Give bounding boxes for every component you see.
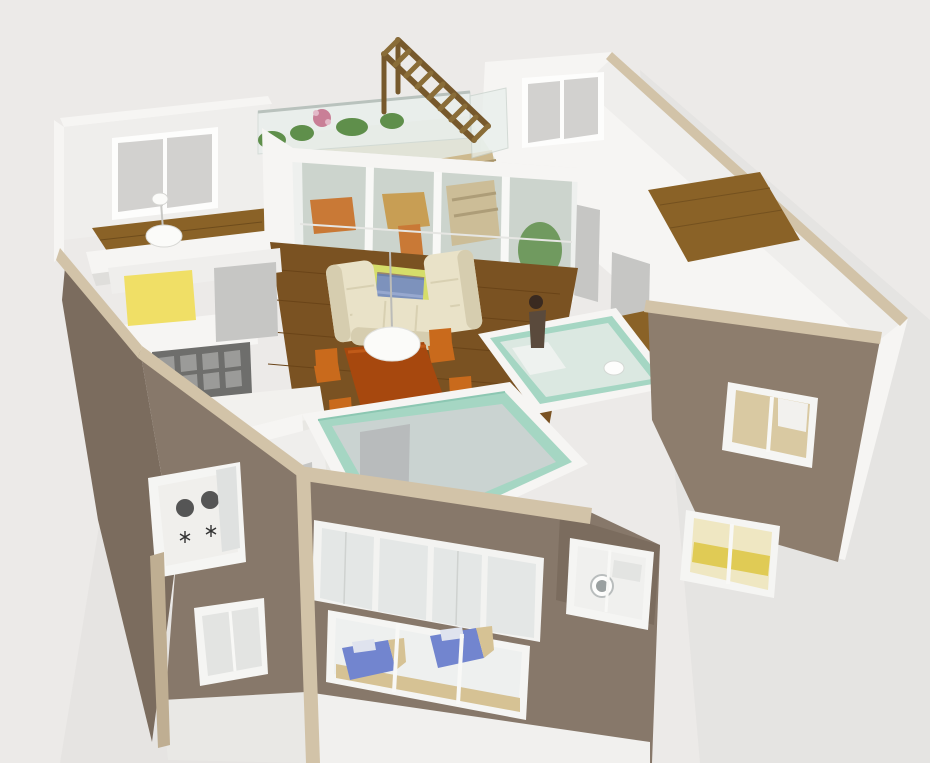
window-pane [564, 77, 598, 139]
plant [380, 113, 404, 129]
toilet [604, 361, 624, 375]
burner [176, 499, 194, 517]
left-wall-edge [54, 120, 64, 262]
cabinet-glass-cell [203, 372, 220, 390]
flower-dot [325, 119, 331, 125]
flower-plant [313, 109, 331, 127]
plant [290, 125, 314, 141]
window-reflection [778, 398, 808, 432]
cabinet-glass-cell [224, 350, 241, 368]
building-base-left [162, 692, 306, 763]
lamp-dome [364, 327, 420, 361]
glazing-pane [320, 528, 374, 610]
chair-seat [428, 343, 455, 363]
gray-door [214, 262, 278, 342]
window-bedroom [112, 127, 218, 220]
figure-hair [529, 295, 543, 309]
cabinet-glass-cell [225, 370, 242, 388]
window-pane [167, 134, 212, 208]
glazing-pane [378, 538, 428, 620]
window-washer [566, 538, 654, 630]
window-pane [528, 81, 560, 143]
window-top-right [522, 72, 604, 148]
cabinet-glass-cell [180, 354, 197, 372]
table-blur [382, 192, 430, 230]
burner [201, 491, 219, 509]
figure-body [529, 310, 546, 348]
render-canvas [0, 0, 930, 763]
yellow-cabinet [124, 270, 196, 326]
glazing-pane [486, 556, 536, 638]
plant [336, 118, 368, 136]
lamp-base [146, 225, 182, 247]
house-3d-viewport[interactable] [0, 0, 930, 763]
chair-seat [314, 363, 341, 383]
orange-chair-blur [310, 197, 356, 234]
lamp-shade [152, 193, 168, 205]
cabinet-glass-cell [202, 352, 219, 370]
chair-back [315, 348, 338, 366]
window-lower-left [194, 598, 268, 686]
flower-dot [313, 110, 319, 116]
